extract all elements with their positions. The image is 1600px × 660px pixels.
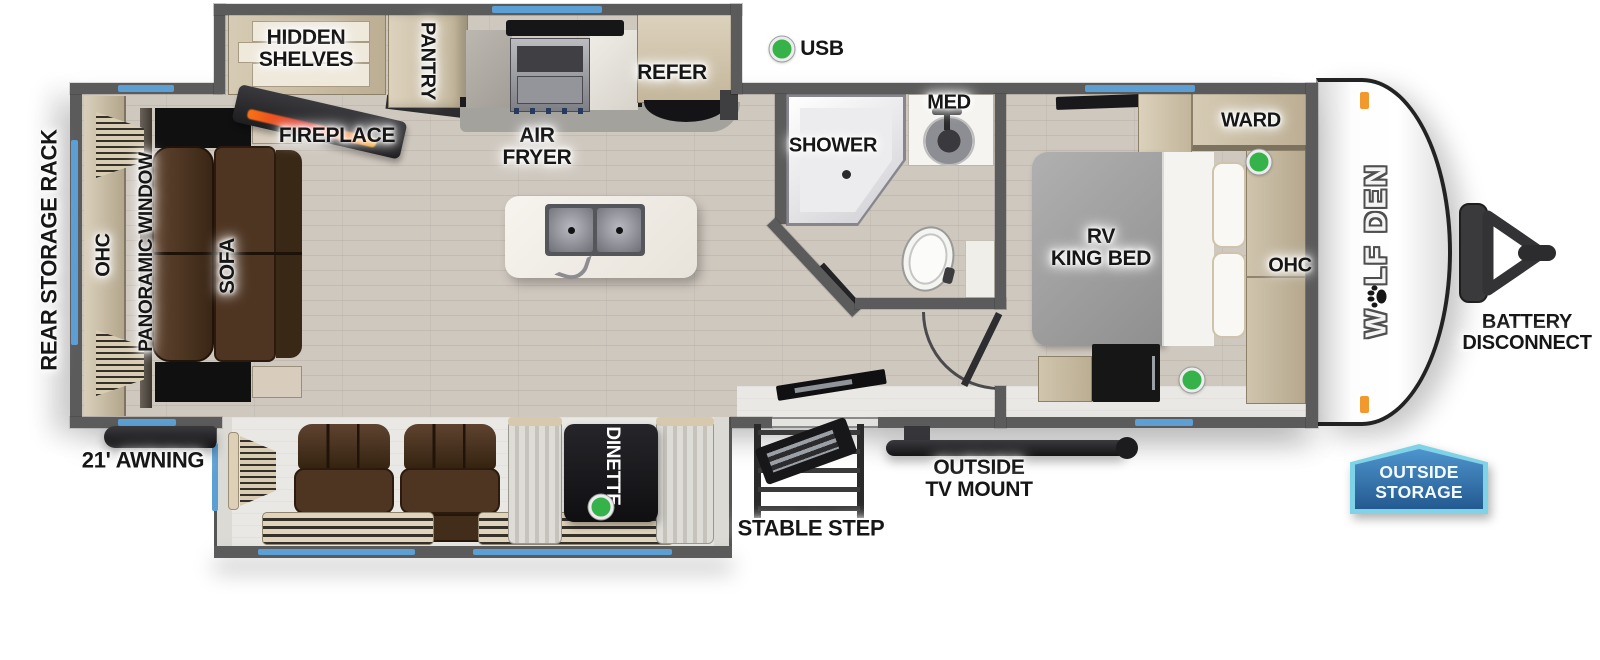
bedroom-wall-stub [995,386,1006,428]
clearance-light-top-icon [1358,90,1371,111]
refer-label: REFER [637,62,707,84]
range-knobs [514,108,588,114]
brand-logo: WLF DEN [1361,162,1394,337]
tv-mount-bracket [904,426,930,440]
dinette-bench-cap-left [508,417,562,426]
fireplace-label: FIREPLACE [279,125,395,147]
range-drawer-top [517,46,583,72]
window-slide-bottom-left [258,549,415,555]
outside-tv-mount-bar-icon [886,440,1126,456]
bed-pillow-top [1212,162,1246,248]
shower-stall [786,94,906,226]
brand-rest: LF DEN [1361,162,1393,285]
window-rear-wall [71,140,78,345]
badge-text: OUTSIDE STORAGE [1350,444,1488,514]
brand-first: W [1361,307,1393,337]
sink-drain-left [568,227,575,234]
sofa-end-table-bottom [155,362,251,402]
window-slide-bottom-right [473,549,672,555]
bed-pillow-bottom [1212,252,1246,338]
slide-window-left-strip [212,443,218,511]
outside-tv-mount-label: OUTSIDE TV MOUNT [925,457,1032,501]
clearance-light-bottom-icon [1358,394,1371,415]
hitch-tongue-icon [1452,198,1564,310]
paw-icon [1368,285,1388,307]
shower-drain [842,170,851,179]
rv-floorplan: WLF DEN BATTERY DISCONNECT OUTSIDE STORA… [0,0,1600,660]
counter-marble-left [466,30,512,108]
window-kitchen-slide [492,6,602,13]
bath-bedroom-wall [995,94,1006,309]
sofa-trim-bottom [252,366,302,398]
kitchen-slide-wall-left [214,4,225,94]
window-rear-top [118,85,174,92]
usb-dot-bed-head [1247,150,1272,175]
bedroom-corner-cabinet [1138,93,1192,155]
refer-cabinet [637,13,732,103]
tv-mount-end-cap [1116,437,1138,459]
dinette-bench-right [656,420,714,544]
dinette-label: DINETTE [602,426,622,505]
wall-top-main [733,83,1316,94]
ohc-bedroom-label: OHC [1268,256,1312,277]
awning-label: 21' AWNING [82,450,204,473]
bed-sheet [1162,152,1214,346]
slide-corner-block [720,90,738,120]
ohc-rear-label: OHC [94,233,115,277]
seat-cushion [294,468,394,514]
stable-step-label: STABLE STEP [738,518,885,541]
kitchen-slide-wall-right [731,4,742,94]
med-label: MED [927,93,971,114]
bath-wall-bottom [855,298,1006,309]
range-drawer-bottom [517,76,583,104]
range-hood-icon [506,20,624,36]
kitchen-slide-wall-top [214,4,742,15]
counter-marble-right [590,30,638,110]
battery-disconnect-label: BATTERY DISCONNECT [1462,312,1591,354]
stable-step-icon [752,424,866,518]
foot-tv-handle [1152,356,1155,390]
hidden-shelves-label: HIDDEN SHELVES [259,27,353,71]
window-bedroom-bottom [1135,419,1193,426]
seat-cushion [400,468,500,514]
ward-label: WARD [1221,111,1281,132]
dinette-bench-left [508,420,562,544]
sofa-label: SOFA [217,238,239,294]
shower-label: SHOWER [789,136,877,157]
slide-window-valance [228,432,239,510]
rv-king-bed-label: RV KING BED [1051,226,1151,270]
bath-wall-left [775,94,786,224]
foot-dresser [1038,356,1092,402]
outside-storage-badge: OUTSIDE STORAGE [1350,444,1488,514]
pantry-label: PANTRY [417,22,438,100]
sink-drain-right [616,227,623,234]
air-fryer-range [510,38,590,112]
rear-storage-rack-label: REAR STORAGE RACK [39,129,62,370]
dinette-bench-cap-right [656,417,714,426]
window-bedroom-top [1085,85,1195,92]
seat-back [404,424,496,470]
foot-tv-cabinet [1092,344,1160,402]
seat-back [298,424,390,470]
slide-wall-right [714,417,732,558]
wall-bottom-front [878,417,1316,428]
usb-dot-dinette [589,495,614,520]
bath-ledge [965,240,995,298]
usb-dot-bed-foot [1180,368,1205,393]
slide-window-shade-left [262,512,434,545]
awning-roll-icon [104,426,216,448]
window-rear-bottom [118,419,176,426]
usb-legend-dot [770,37,795,62]
usb-legend-label: USB [800,38,843,60]
air-fryer-label: AIR FRYER [503,125,572,169]
vanity-faucet-stem [944,112,950,130]
panoramic-window-label: PANORAMIC WINDOW [137,152,157,352]
